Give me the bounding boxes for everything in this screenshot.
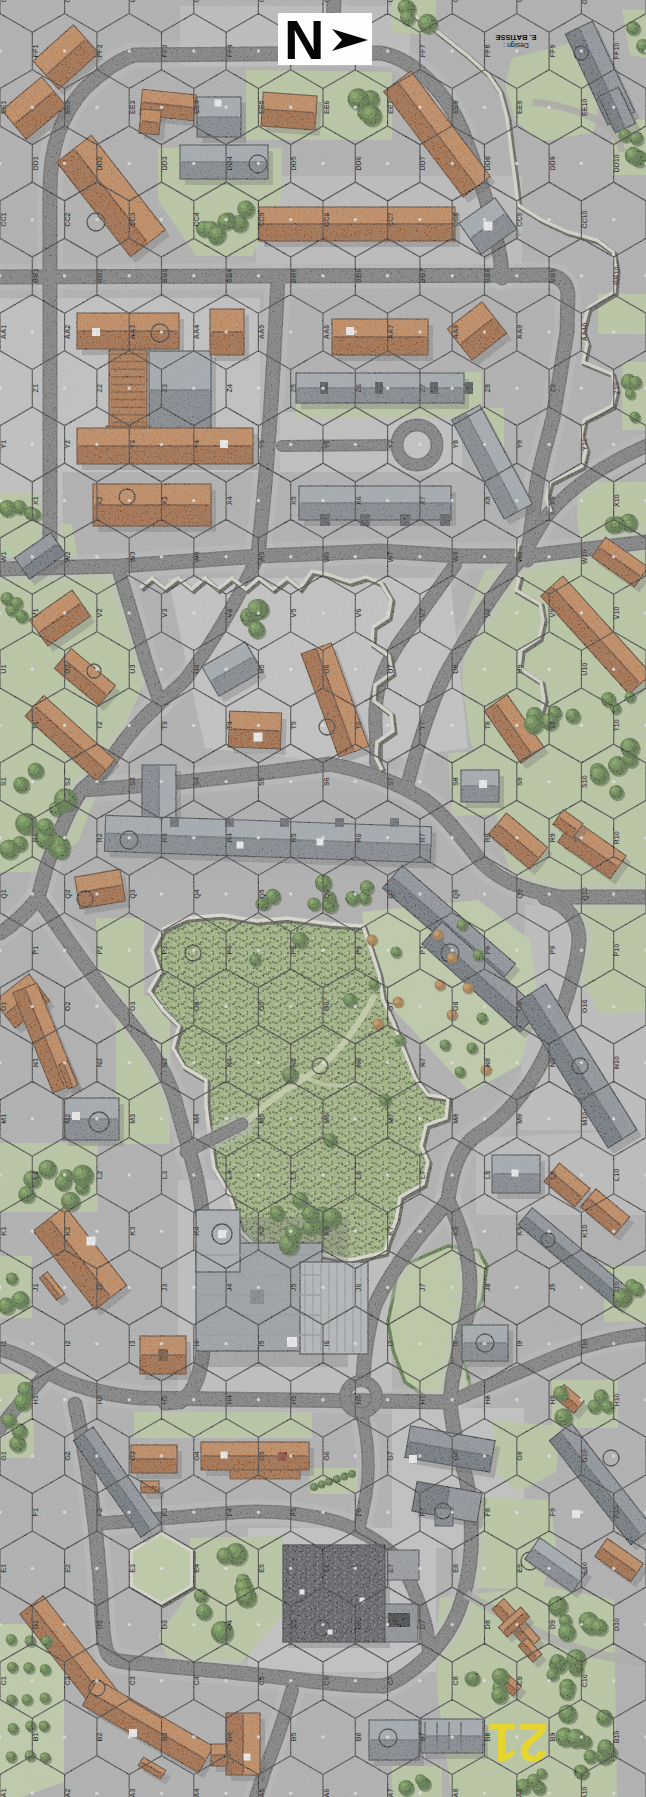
svg-text:21: 21 [488,1713,548,1773]
svg-text:N: N [284,8,324,71]
svg-text:E. BATISSE: E. BATISSE [495,33,536,42]
